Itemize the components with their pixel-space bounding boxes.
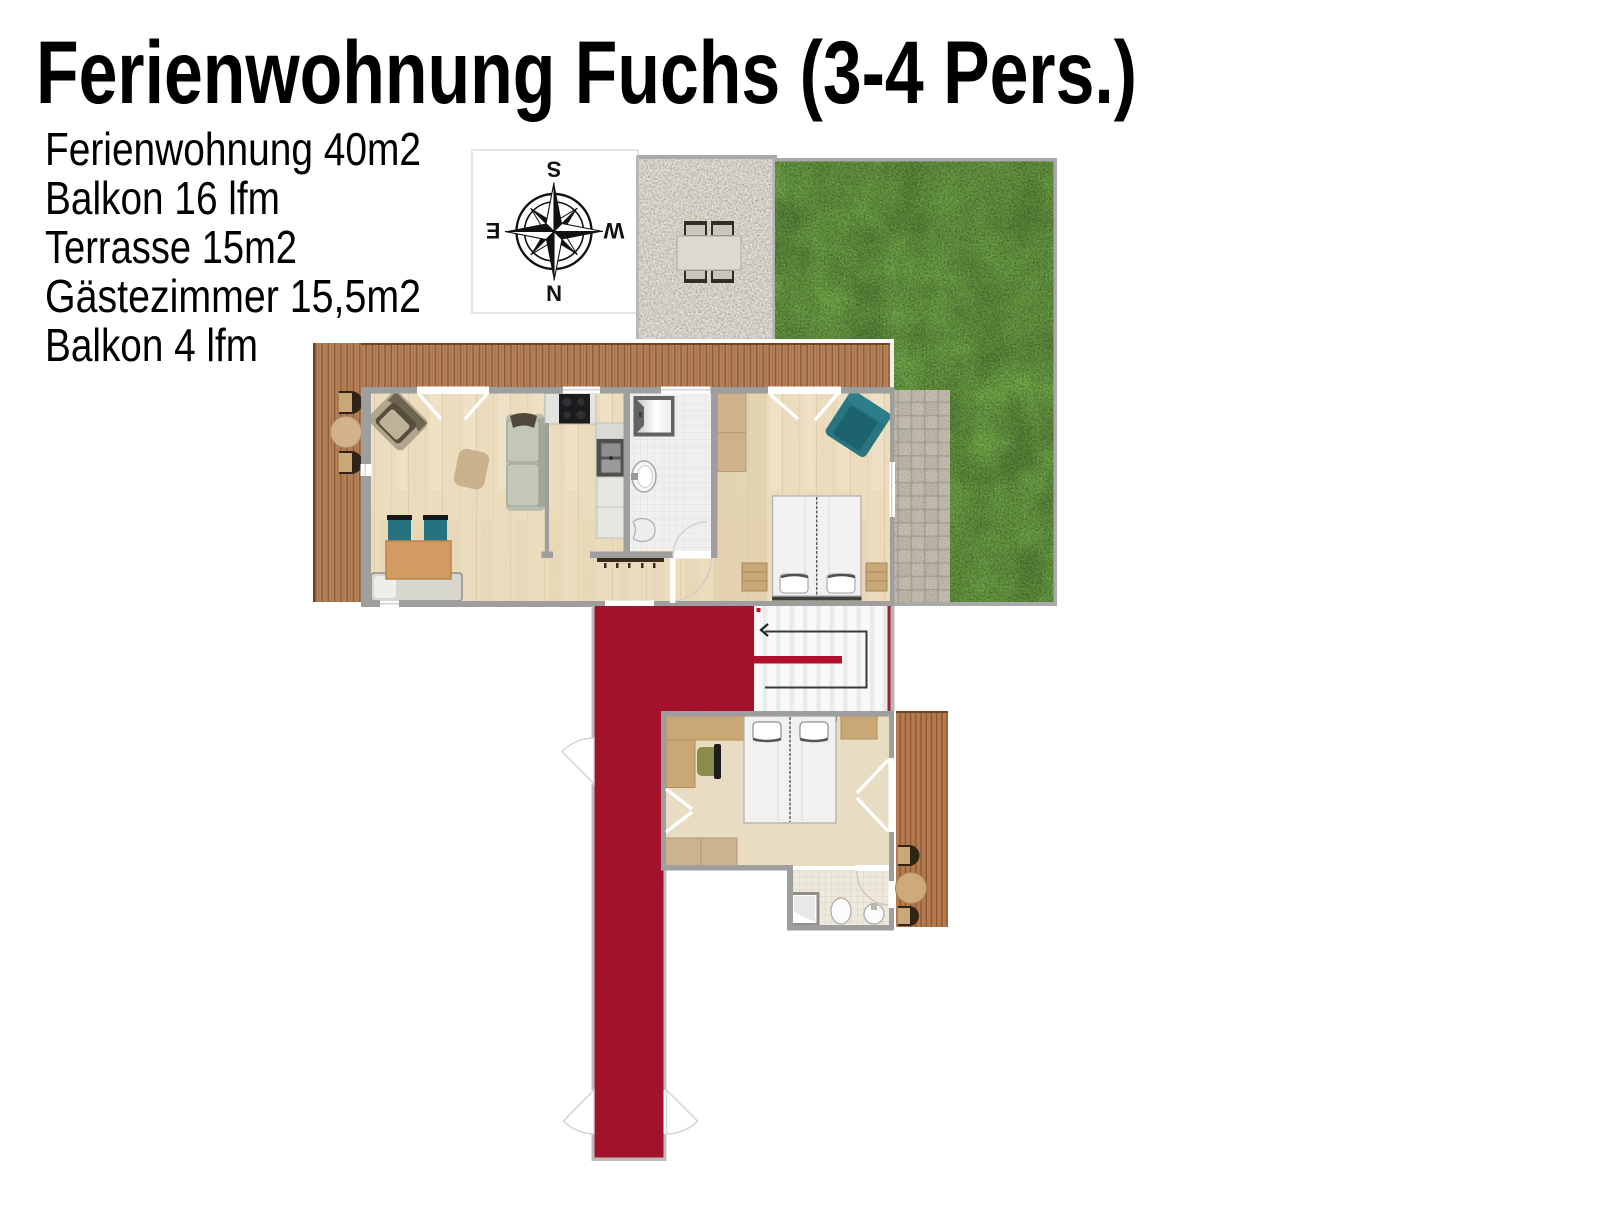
svg-text:S: S xyxy=(547,157,562,182)
svg-text:Ferienwohnung 40m2: Ferienwohnung 40m2 xyxy=(45,123,421,175)
svg-text:E: E xyxy=(486,218,501,243)
svg-text:Balkon 4 lfm: Balkon 4 lfm xyxy=(45,319,258,371)
svg-text:Balkon 16 lfm: Balkon 16 lfm xyxy=(45,172,280,224)
svg-text:W: W xyxy=(603,218,624,243)
svg-text:Gästezimmer 15,5m2: Gästezimmer 15,5m2 xyxy=(45,270,421,322)
svg-text:Terrasse 15m2: Terrasse 15m2 xyxy=(45,221,297,273)
svg-text:Ferienwohnung Fuchs (3-4 Pers.: Ferienwohnung Fuchs (3-4 Pers.) xyxy=(36,22,1137,122)
svg-text:N: N xyxy=(546,281,562,306)
